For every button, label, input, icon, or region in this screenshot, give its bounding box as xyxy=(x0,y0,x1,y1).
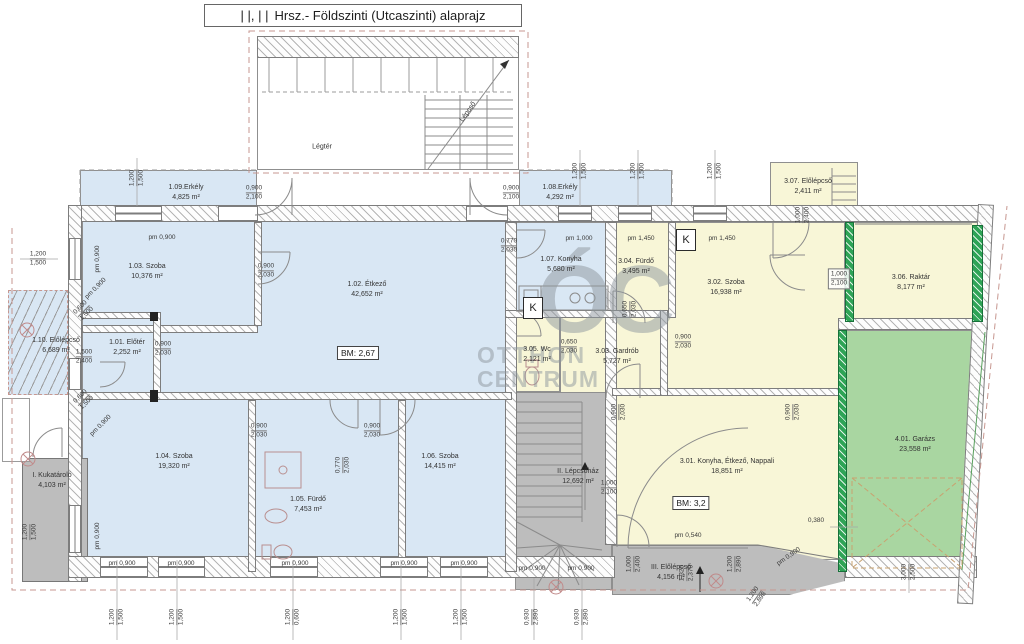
room-label-301: 3.01. Konyha, Étkező, Nappali18,851 m² xyxy=(680,457,774,477)
dim-label: 0,9002,030 xyxy=(364,422,380,439)
watermark-line2: CENTRUM xyxy=(477,366,599,393)
dim-label: 1,2001,500 xyxy=(706,163,723,179)
dim-label: pm 0,900 xyxy=(108,560,135,568)
room-label-101: 1.01. Előtér2,252 m² xyxy=(109,338,145,358)
room-label-107: 1.07. Konyha5,680 m² xyxy=(540,255,581,275)
room-label-kukatarolo: I. Kukatároló4,103 m² xyxy=(32,471,71,491)
dim-label: pm 0,900 xyxy=(167,560,194,568)
dim-label: 1,2000,600 xyxy=(284,609,301,625)
dim-label: pm 0,900 xyxy=(567,565,594,573)
room-label-109: 1.09.Erkély4,825 m² xyxy=(168,183,203,203)
dim-label: 0,7702,030 xyxy=(501,237,517,254)
room-label-305: 3.05. Wc2,121 m² xyxy=(523,345,551,365)
dim-label: 1,2001,500 xyxy=(629,163,646,179)
dim-label: pm 0,900 xyxy=(148,234,175,242)
room-label-110: 1.10. Előlépcső6,689 m² xyxy=(32,336,80,356)
legter-label: Légtér xyxy=(312,144,332,151)
dim-label: pm 0,900 xyxy=(94,522,102,549)
title-box: | |, | | Hrsz.- Földszinti (Utcaszinti) … xyxy=(204,4,522,27)
dim-label: 1,2001,500 xyxy=(108,609,125,625)
dim-label: 0,380 xyxy=(808,517,824,525)
dim-label: 0,7702,030 xyxy=(334,457,351,473)
room-label-307: 3.07. Előlépcső2,411 m² xyxy=(784,177,832,197)
dim-label: pm 0,900 xyxy=(94,245,102,272)
dim-label: 0,9002,030 xyxy=(155,340,171,357)
bm-left-label: BM: 2,67 xyxy=(337,346,379,360)
dim-label: 1,2001,500 xyxy=(392,609,409,625)
room-label-105: 1.05. Fürdő7,453 m² xyxy=(290,495,326,515)
room-label-303: 3.03. Gardrób5,727 m² xyxy=(595,347,638,367)
dim-label: 1,2001,500 xyxy=(21,524,38,540)
room-label-102: 1.02. Étkező42,652 m² xyxy=(348,280,387,300)
dim-label: 0,9302,890 xyxy=(573,609,590,625)
room-label-304: 3.04. Fürdő3,495 m² xyxy=(618,257,654,277)
dim-label: 1,2001,500 xyxy=(128,170,145,186)
dim-label: pm 0,540 xyxy=(674,532,701,540)
dim-label: 0,9302,890 xyxy=(523,609,540,625)
room-label-306: 3.06. Raktár8,177 m² xyxy=(892,273,930,293)
room-label-lepcsohaz: II. Lépcsőház12,692 m² xyxy=(557,467,599,487)
dim-label: 0,9002,030 xyxy=(784,404,801,420)
dim-label: 1,2001,500 xyxy=(571,163,588,179)
page-title: Hrsz.- Földszinti (Utcaszinti) alaprajz xyxy=(275,8,486,23)
dim-label: 1,0002,100 xyxy=(828,268,850,289)
dim-label: 0,9002,030 xyxy=(258,262,274,279)
dim-label: pm 1,450 xyxy=(627,235,654,243)
linework-layer xyxy=(0,0,1024,644)
dim-label: pm 0,900 xyxy=(450,560,477,568)
room-label-106: 1.06. Szoba14,415 m² xyxy=(421,452,458,472)
room-label-103: 1.03. Szoba10,376 m² xyxy=(128,262,165,282)
room-label-401: 4.01. Garázs23,558 m² xyxy=(895,435,935,455)
dim-label: 0,9002,030 xyxy=(610,404,627,420)
room-label-108: 1.08.Erkély4,292 m² xyxy=(542,183,577,203)
title-redacted-marks: | |, | | xyxy=(241,8,269,23)
dim-label: 0,9002,030 xyxy=(251,422,267,439)
dim-label: pm 1,000 xyxy=(565,235,592,243)
dim-label: 1,2001,500 xyxy=(168,609,185,625)
dim-label: 1,5002,400 xyxy=(76,348,92,365)
room-label-104: 1.04. Szoba19,320 m² xyxy=(155,452,192,472)
dim-label: 1,2001,500 xyxy=(452,609,469,625)
dim-label: 1,0002,100 xyxy=(601,479,617,496)
dim-label: pm 1,450 xyxy=(708,235,735,243)
dim-label: 1,0002,400 xyxy=(794,207,811,223)
dim-label: pm 0,900 xyxy=(518,565,545,573)
bm-right-label: BM: 3,2 xyxy=(672,496,709,510)
dim-label: 0,9002,030 xyxy=(675,333,691,350)
dim-label: pm 0,900 xyxy=(390,560,417,568)
k-marker-1: K xyxy=(676,229,696,251)
dim-label: 1,0002,400 xyxy=(625,556,642,572)
room-label-302: 3.02. Szoba16,938 m² xyxy=(707,278,744,298)
dim-label: 1,2001,500 xyxy=(30,250,46,267)
dim-label: 0,9002,100 xyxy=(246,184,262,201)
dim-label: 0,9002,100 xyxy=(503,184,519,201)
dim-label: 0,6502,030 xyxy=(561,338,577,355)
dim-label: 0,6502,030 xyxy=(621,301,638,317)
floor-plan-canvas: ÓC OTTHON CENTRUM | |, | | Hrsz.- Földsz… xyxy=(0,0,1024,644)
dim-label: 1,2002,890 xyxy=(726,556,743,572)
k-marker-2: K xyxy=(523,297,543,319)
dim-label: pm 0,900 xyxy=(281,560,308,568)
dim-label: 3,0002,500 xyxy=(900,564,917,580)
dim-label: 1,3202,370 xyxy=(678,565,695,581)
